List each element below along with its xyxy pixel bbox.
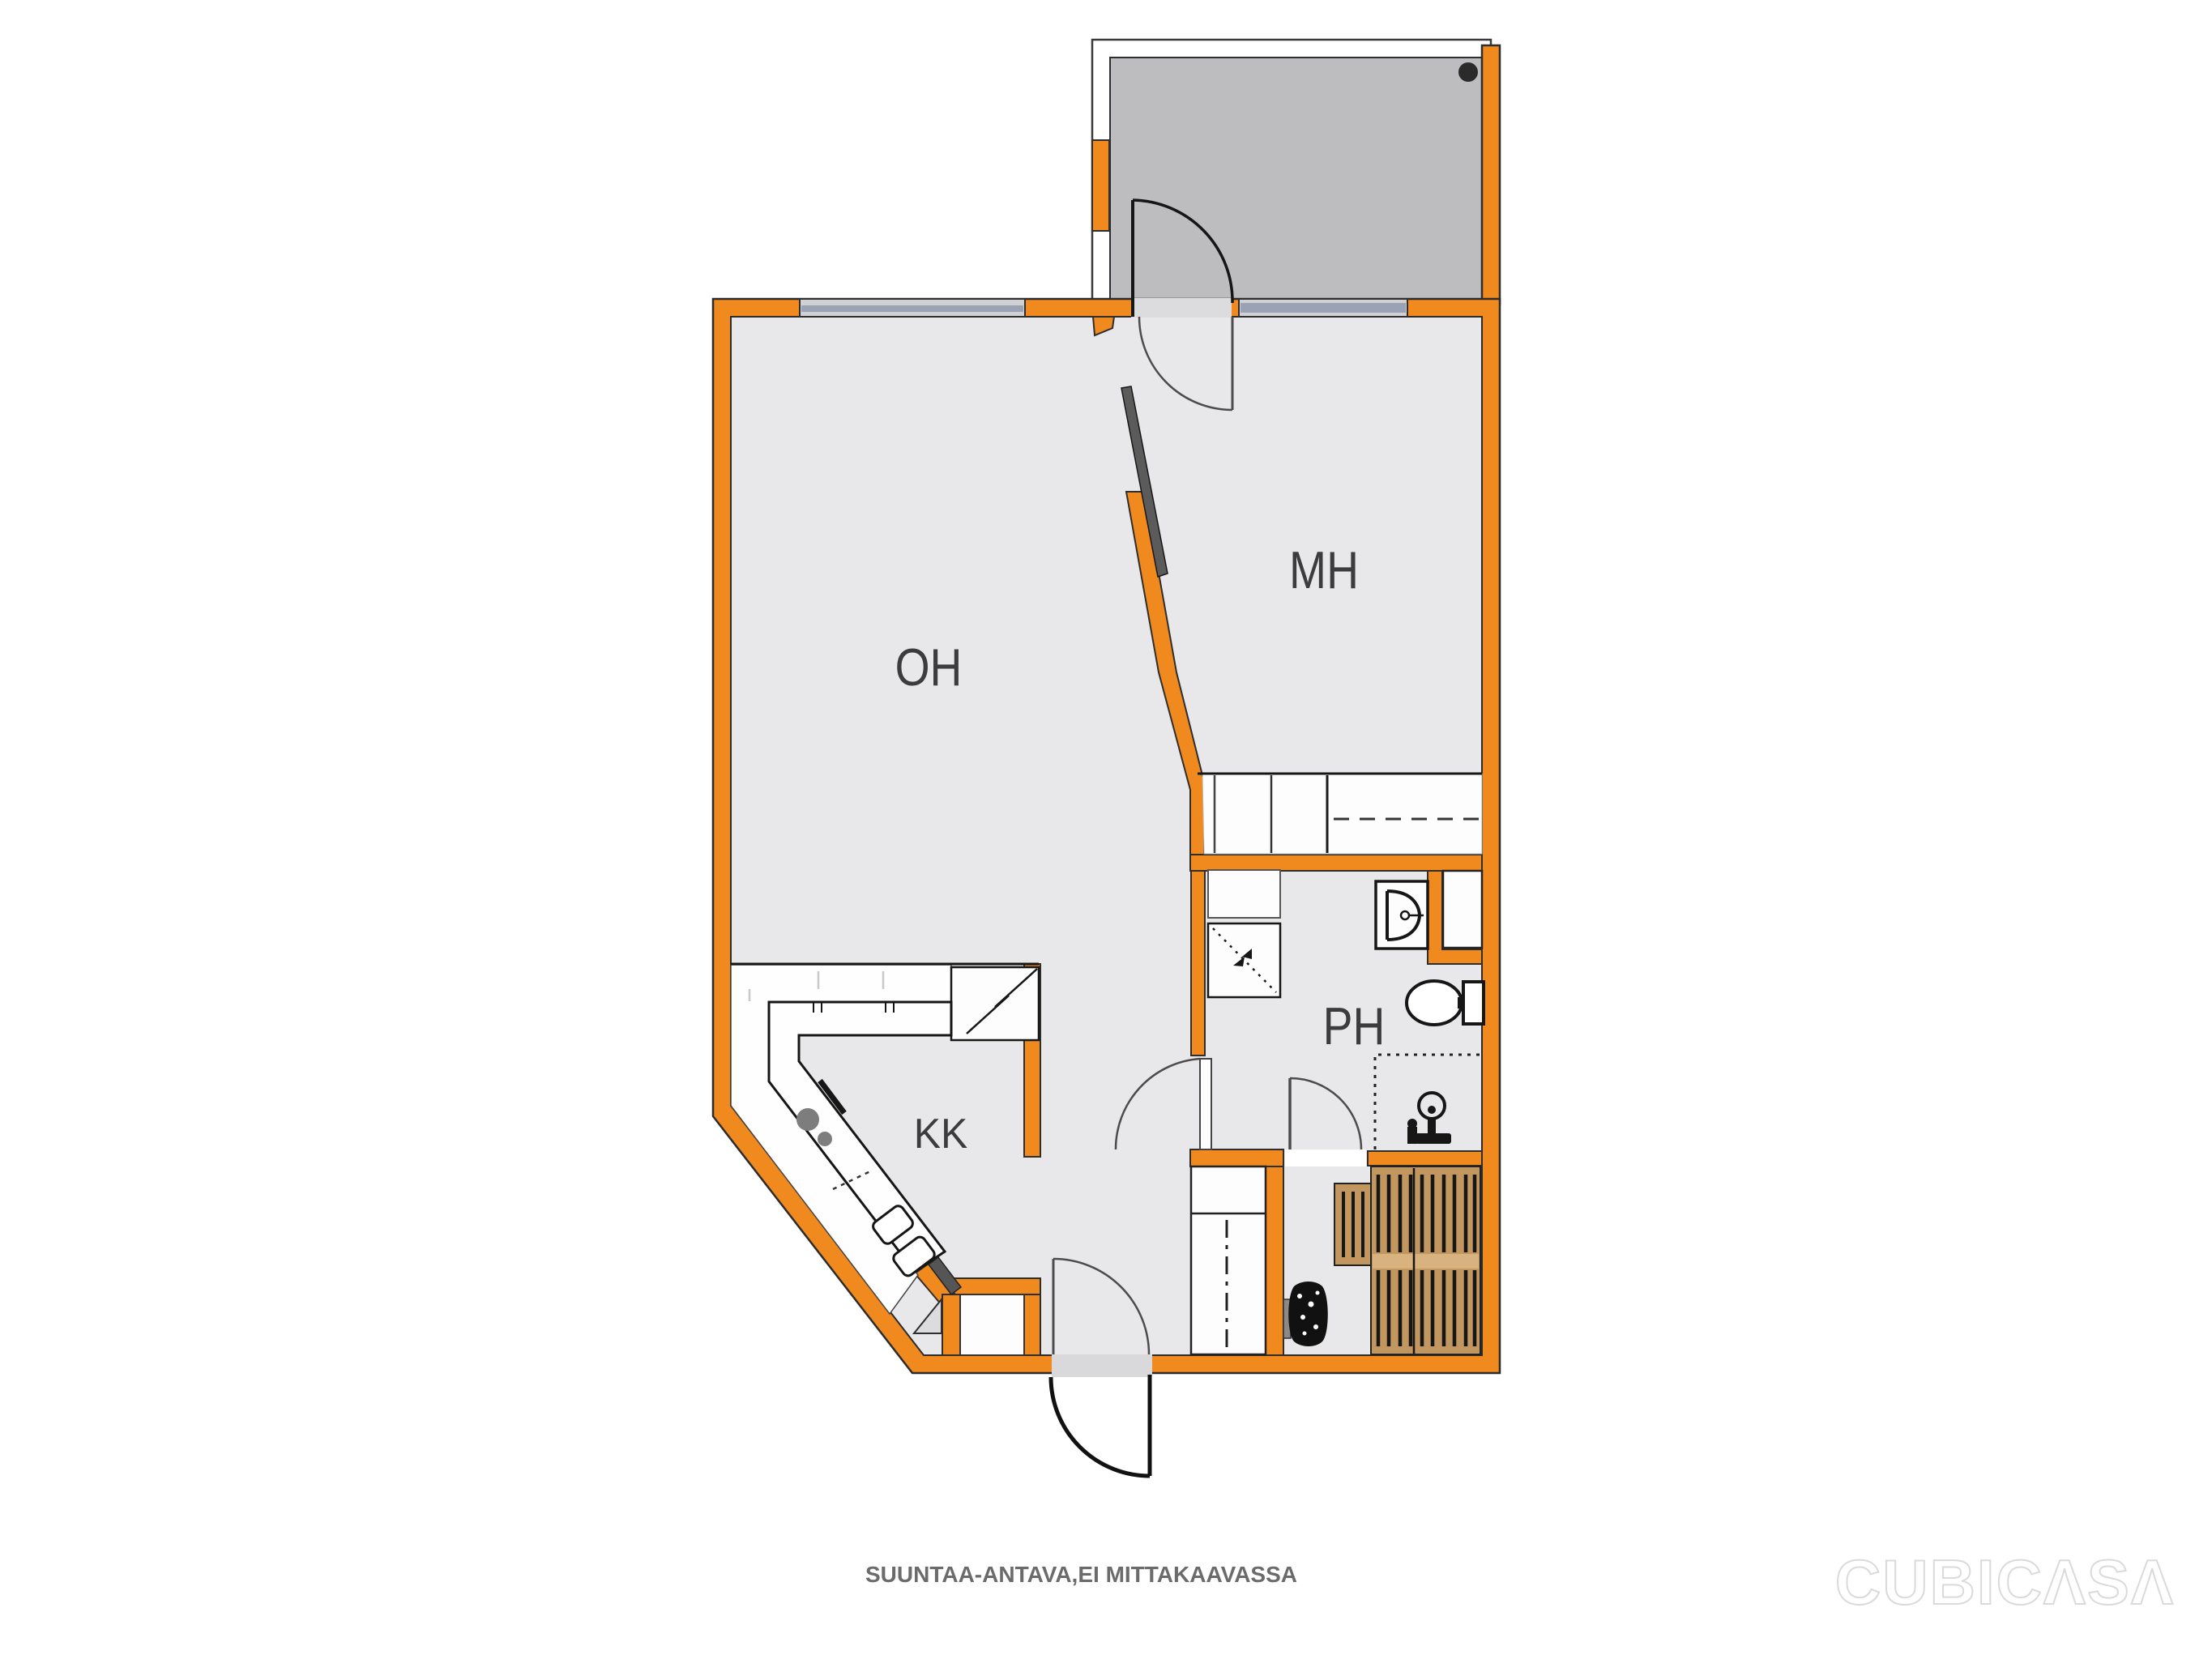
svg-text:SUUNTAA-ANTAVA,EI MITTAKAAVASS: SUUNTAA-ANTAVA,EI MITTAKAAVASSA xyxy=(865,1562,1297,1587)
svg-text:OH: OH xyxy=(895,638,963,697)
svg-text:CUBICΛSΛ: CUBICΛSΛ xyxy=(1835,1546,2175,1618)
svg-text:KK: KK xyxy=(914,1110,968,1157)
svg-text:PH: PH xyxy=(1323,996,1386,1056)
svg-text:MH: MH xyxy=(1289,540,1359,599)
